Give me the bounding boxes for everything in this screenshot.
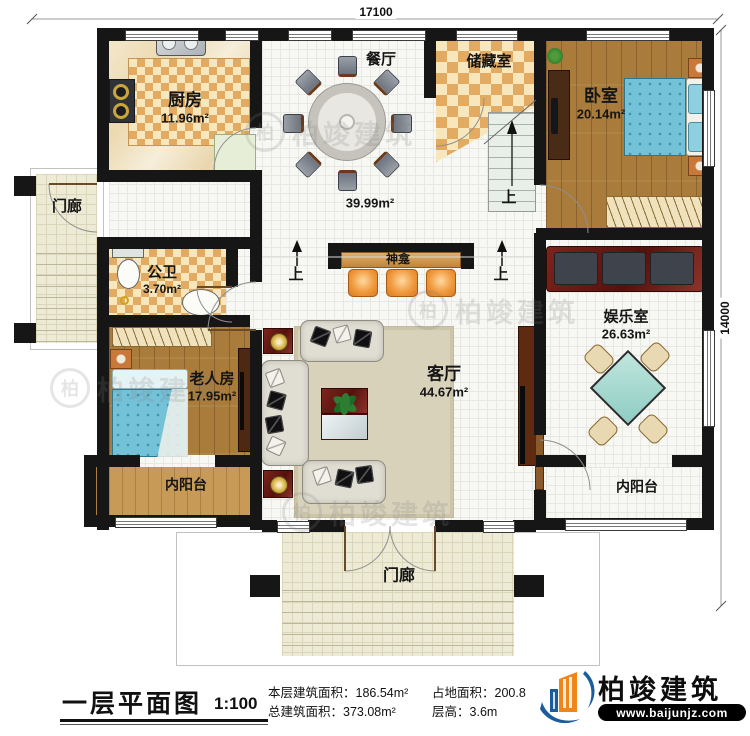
wall-bath-bottom: [97, 315, 250, 327]
room-label-bedroom: 卧室 20.14m²: [577, 86, 625, 121]
bedroom-bed-mattress: [624, 78, 686, 156]
room-label-balcony-left: 内阳台: [165, 477, 207, 494]
dining-chair: [338, 56, 357, 77]
room-label-bath: 公卫 3.70m²: [143, 264, 181, 296]
watermark-badge-icon: 柏: [50, 368, 90, 408]
shrine-wall-stub: [461, 243, 474, 269]
hall-area-label: 39.99m²: [346, 195, 394, 210]
bedroom-monitor: [551, 98, 558, 134]
title-underline: [60, 719, 268, 722]
dining-chair: [338, 170, 357, 191]
wall-elder-bottom: [215, 455, 262, 467]
kitchen-counter: [214, 134, 256, 172]
room-label-porch-front: 门廊: [383, 568, 415, 587]
porch-column: [250, 575, 280, 597]
shrine-cushion: [348, 269, 378, 297]
step-up-right-label: 上: [493, 266, 508, 284]
bedroom-plant: [547, 48, 563, 64]
wall-interior-b: [534, 233, 546, 435]
page-title: 一层平面图: [62, 684, 202, 720]
room-label-living: 客厅 44.67m²: [420, 364, 468, 399]
floor-lamp: [270, 476, 288, 494]
window: [115, 517, 217, 528]
porch-column: [14, 323, 36, 343]
shrine-wall: [328, 243, 474, 252]
room-label-storage: 储藏室: [466, 53, 511, 71]
coffee-table-glass: [321, 414, 368, 440]
elder-wardrobe: [112, 327, 212, 347]
wall-living-bottom: [308, 520, 345, 532]
total-area-row: 总建筑面积：373.08m²: [268, 703, 408, 722]
porch-left-steps: [36, 253, 97, 343]
window: [225, 30, 259, 41]
window: [456, 30, 518, 41]
dining-chair: [283, 114, 304, 133]
room-label-kitchen: 厨房 11.96m²: [161, 90, 209, 125]
dimension-top: 17100: [355, 5, 396, 19]
wall-interior-b: [534, 490, 546, 530]
recreation-sofa-cushion: [554, 252, 598, 285]
company-logo-icon: [538, 664, 596, 726]
wall-kitchen-bottom: [97, 170, 250, 182]
room-label-dining: 餐厅: [366, 51, 396, 69]
window: [352, 30, 426, 41]
porch-front-steps: [282, 590, 514, 656]
wall-interior-a: [250, 170, 262, 282]
wall-recreation-balcony: [536, 455, 586, 467]
wall-left-lower: [97, 237, 109, 530]
area-stats-left: 本层建筑面积：186.54m² 总建筑面积：373.08m²: [268, 684, 408, 722]
wall-recreation-balcony: [672, 455, 714, 467]
area-stats-right: 占地面积：200.8 层高：3.6m: [432, 684, 526, 722]
sofa-pillow: [265, 415, 285, 435]
window: [483, 521, 515, 533]
wall-left-kitchen: [97, 28, 109, 182]
land-area-row: 占地面积：200.8: [432, 684, 526, 703]
room-label-balcony-right: 内阳台: [616, 479, 658, 496]
toilet-bowl: [117, 259, 140, 289]
window: [586, 30, 670, 41]
sofa-pillow: [353, 329, 373, 349]
elder-bed-pillows: [112, 369, 188, 389]
wall-bath-east: [226, 237, 238, 287]
recreation-sofa-cushion: [602, 252, 646, 285]
window: [565, 519, 687, 531]
company-website: www.baijunjz.com: [598, 704, 746, 721]
sofa-pillow: [355, 465, 374, 484]
wall-living-bottom: [435, 520, 483, 532]
drawing-scale: 1:100: [214, 694, 257, 714]
floor-plan-canvas: 柏 柏竣建筑 柏 柏竣建筑 柏 柏竣建筑 柏 柏竣建筑 17100 14000 …: [0, 0, 750, 736]
wall-interior-a: [250, 330, 262, 530]
room-label-elder: 老人房 17.95m²: [188, 370, 236, 403]
floor-lamp: [270, 333, 288, 351]
recreation-sofa-cushion: [650, 252, 694, 285]
elder-tv: [240, 372, 244, 430]
porch-column: [514, 575, 544, 597]
step-up-left-label: 上: [288, 266, 303, 284]
dining-chair: [391, 114, 412, 133]
bath-sink: [182, 289, 220, 316]
bedroom-wardrobe: [606, 196, 704, 228]
room-label-porch-left: 门廊: [52, 198, 82, 216]
elder-nightstand: [110, 349, 132, 369]
stove-burner: [113, 84, 129, 100]
shrine-label: 神龛: [386, 252, 410, 266]
window: [703, 90, 715, 167]
shrine-cushion: [386, 269, 418, 297]
title-underline-thin: [60, 724, 268, 725]
window: [125, 30, 199, 41]
tv: [520, 386, 525, 464]
wall-interior-a: [250, 28, 262, 128]
dining-table-center: [339, 114, 355, 130]
company-name: 柏竣建筑: [598, 668, 722, 707]
storey-height-row: 层高：3.6m: [432, 703, 526, 722]
stairs-up-label: 上: [501, 189, 516, 207]
shrine-wall-stub: [328, 243, 341, 269]
window: [288, 30, 332, 41]
stove-burner: [113, 103, 129, 119]
wall-interior-b: [534, 28, 546, 185]
dimension-right: 14000: [718, 297, 732, 338]
wall-bedroom-south: [536, 228, 714, 240]
sofa-pillow: [334, 468, 354, 488]
wall-living-bottom: [262, 520, 277, 532]
porch-column: [14, 176, 36, 196]
shrine-cushion: [426, 269, 456, 297]
floor-area-row: 本层建筑面积：186.54m²: [268, 684, 408, 703]
window: [703, 330, 715, 427]
window: [277, 521, 310, 533]
wall-living-bottom: [513, 520, 536, 532]
towel-ring: [120, 296, 129, 305]
room-label-recreation: 娱乐室 26.63m²: [602, 308, 650, 341]
